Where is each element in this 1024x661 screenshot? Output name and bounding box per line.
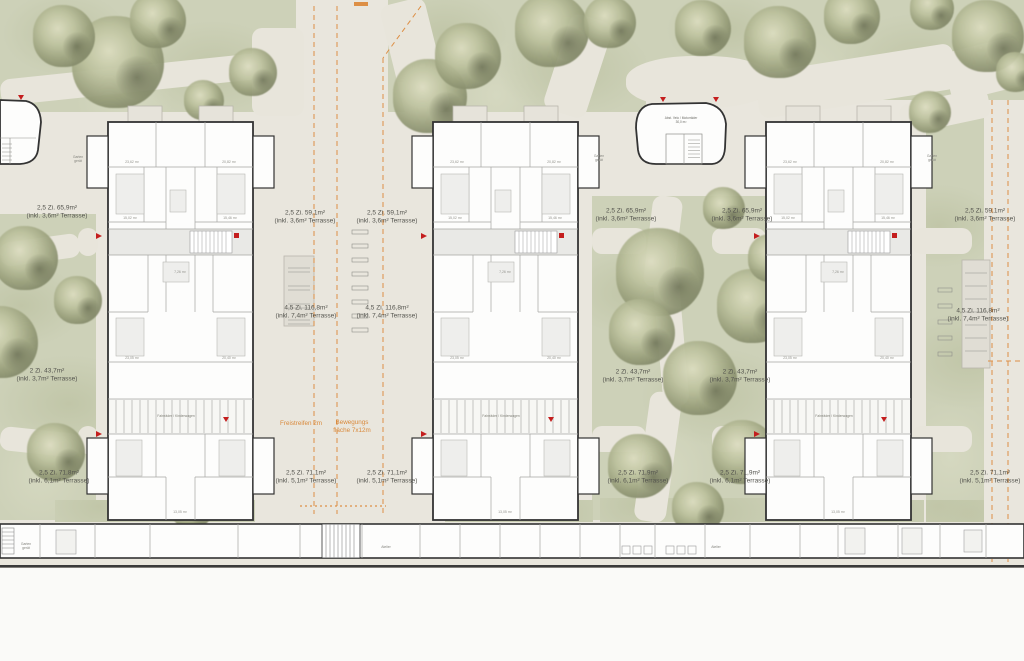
zone-label-text: Freistreifen 2m <box>280 420 322 428</box>
room-area-label: 20,40 m² <box>222 356 236 360</box>
unit-label: 2 Zi. 43,7m²(inkl. 3,7m² Terrasse) <box>603 369 664 386</box>
room-area-label: 13,05 m² <box>498 510 512 514</box>
unit-label: 2,5 Zi. 71,1m²(inkl. 5,1m² Terrasse) <box>357 470 418 487</box>
atelier-label: Atelier <box>381 545 391 549</box>
zone-label-text: fläche 7x12m <box>333 427 370 435</box>
room-area-label: 23,62 m² <box>450 160 464 164</box>
room-area-label: 7,26 m² <box>832 270 844 274</box>
unit-label: 2,5 Zi. 71,9m²(inkl. 6,1m² Terrasse) <box>710 470 771 487</box>
room-area-label: 15,02 m² <box>123 216 137 220</box>
pavilion-label-line2: 30,0 m² <box>665 121 698 125</box>
unit-label: 2 Zi. 43,7m²(inkl. 3,7m² Terrasse) <box>710 369 771 386</box>
room-area-label: 15,46 m² <box>223 216 237 220</box>
unit-label: 2,5 Zi. 71,1m²(inkl. 5,1m² Terrasse) <box>276 470 337 487</box>
room-area-label: 15,02 m² <box>448 216 462 220</box>
room-area-label: 15,46 m² <box>548 216 562 220</box>
room-area-label: 13,05 m² <box>173 510 187 514</box>
room-area-label: 23,05 m² <box>125 356 139 360</box>
room-area-label: 15,02 m² <box>781 216 795 220</box>
garden-tools-label: Gartengerät <box>73 155 83 163</box>
room-area-label: 20,40 m² <box>880 356 894 360</box>
unit-label: 4,5 Zi. 116,8m²(inkl. 7,4m² Terrasse) <box>948 308 1009 325</box>
atelier-label: Atelier <box>711 545 721 549</box>
unit-label: 2,5 Zi. 59,1m²(inkl. 3,6m² Terrasse) <box>955 208 1016 225</box>
room-area-label: 7,26 m² <box>174 270 186 274</box>
room-area-label: 20,40 m² <box>547 356 561 360</box>
room-area-label: 20,82 m² <box>547 160 561 164</box>
bike-room-label: Fahrräder / Kinderwagen <box>815 414 853 418</box>
garden-tools-label: Gartengerät <box>21 542 31 550</box>
bike-room-label: Fahrräder / Kinderwagen <box>157 414 195 418</box>
room-area-label: 23,62 m² <box>783 160 797 164</box>
unit-label: 2,5 Zi. 71,8m²(inkl. 6,1m² Terrasse) <box>29 470 90 487</box>
unit-label: 2,5 Zi. 59,1m²(inkl. 3,6m² Terrasse) <box>275 210 336 227</box>
room-area-label: 23,62 m² <box>125 160 139 164</box>
zone-label-freistreifen: Freistreifen 2m <box>280 420 322 428</box>
unit-label: 4,5 Zi. 116,8m²(inkl. 7,4m² Terrasse) <box>276 305 337 322</box>
bike-room-label: Fahrräder / Kinderwagen <box>482 414 520 418</box>
pavilion-label: Abst. Velo / Motorräder 30,0 m² <box>665 117 698 125</box>
room-area-label: 20,82 m² <box>222 160 236 164</box>
site-plan-canvas: Freistreifen 2m Bewegungs fläche 7x12m A… <box>0 0 1024 661</box>
unit-label: 2,5 Zi. 65,9m²(inkl. 3,6m² Terrasse) <box>596 208 657 225</box>
room-area-label: 13,05 m² <box>831 510 845 514</box>
unit-label: 2 Zi. 43,7m²(inkl. 3,7m² Terrasse) <box>17 368 78 385</box>
unit-label: 2,5 Zi. 65,9m²(inkl. 3,6m² Terrasse) <box>27 205 88 222</box>
room-area-label: 7,26 m² <box>499 270 511 274</box>
garden-tools-label: Gartengerät <box>927 154 937 162</box>
zone-label-bewegungsflaeche: Bewegungs fläche 7x12m <box>333 419 370 435</box>
room-area-label: 23,05 m² <box>450 356 464 360</box>
labels-layer: Freistreifen 2m Bewegungs fläche 7x12m A… <box>0 0 1024 661</box>
unit-label: 2,5 Zi. 59,1m²(inkl. 3,6m² Terrasse) <box>357 210 418 227</box>
unit-label: 4,5 Zi. 116,8m²(inkl. 7,4m² Terrasse) <box>357 305 418 322</box>
garden-tools-label: Gartengerät <box>594 154 604 162</box>
room-area-label: 20,82 m² <box>880 160 894 164</box>
unit-label: 2,5 Zi. 71,1m²(inkl. 5,1m² Terrasse) <box>960 470 1021 487</box>
zone-label-text: Bewegungs <box>333 419 370 427</box>
room-area-label: 23,05 m² <box>783 356 797 360</box>
unit-label: 2,5 Zi. 65,9m²(inkl. 3,6m² Terrasse) <box>712 208 773 225</box>
unit-label: 2,5 Zi. 71,9m²(inkl. 6,1m² Terrasse) <box>608 470 669 487</box>
room-area-label: 15,46 m² <box>881 216 895 220</box>
